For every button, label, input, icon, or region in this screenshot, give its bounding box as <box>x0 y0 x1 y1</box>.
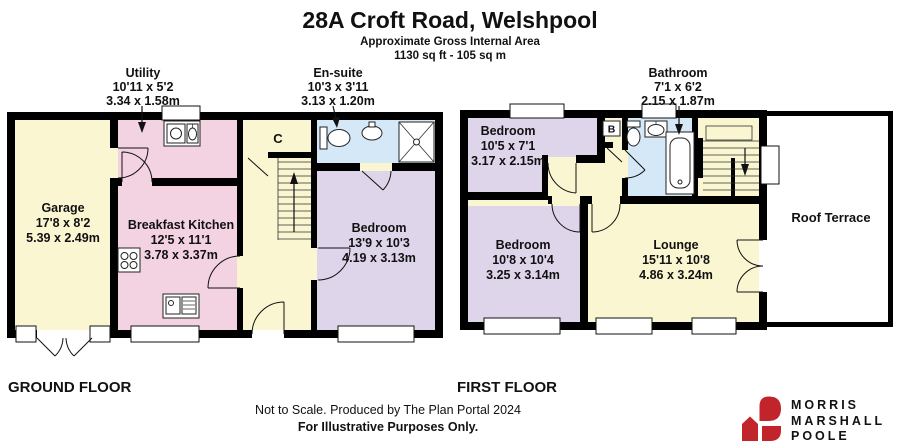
agency-logo: MORRIS MARSHALL POOLE <box>742 397 885 444</box>
ensuite-name: En-suite <box>313 66 362 80</box>
footer: Not to Scale. Produced by The Plan Porta… <box>255 403 521 434</box>
first-floor-title: FIRST FLOOR <box>457 379 557 396</box>
toilet-icon-bathroom <box>627 121 640 146</box>
logo-line2: MARSHALL <box>791 414 885 428</box>
window-bedroom-front <box>510 104 564 118</box>
lounge-imperial: 15'11 x 10'8 <box>642 253 710 267</box>
window-garage-right <box>90 326 110 342</box>
bedroom-front-imperial: 10'5 x 7'1 <box>481 139 536 153</box>
bedroom-ground-metric: 4.19 x 3.13m <box>342 251 416 265</box>
ground-floor-title: GROUND FLOOR <box>8 379 131 396</box>
stove-icon <box>118 248 140 272</box>
bedroom-rear-imperial: 10'8 x 10'4 <box>492 253 554 267</box>
door-garage-double <box>37 338 92 356</box>
footer-line2: For Illustrative Purposes Only. <box>298 420 478 434</box>
lounge-metric: 4.86 x 3.24m <box>639 268 713 282</box>
garage-metric: 5.39 x 2.49m <box>26 231 100 245</box>
bedroom-front-name: Bedroom <box>481 124 536 138</box>
bathroom-metric: 2.15 x 1.87m <box>641 94 715 108</box>
window-utility <box>162 106 200 120</box>
logo-quarter-icon <box>762 426 781 441</box>
garage-name: Garage <box>41 201 84 215</box>
utility-name: Utility <box>126 66 161 80</box>
window-bedroom-ground <box>338 326 414 342</box>
logo-droplet-icon <box>760 397 782 422</box>
basin-icon-bathroom <box>645 121 667 137</box>
utility-imperial: 10'11 x 5'2 <box>113 80 174 94</box>
window-garage-left <box>16 326 36 342</box>
footer-line1: Not to Scale. Produced by The Plan Porta… <box>255 403 521 417</box>
bedroom-front-metric: 3.17 x 2.15m <box>471 154 545 168</box>
window-bedroom-rear <box>484 318 560 334</box>
bedroom-ground-name: Bedroom <box>352 221 407 235</box>
floorplan-page: 28A Croft Road, Welshpool Approximate Gr… <box>0 0 900 445</box>
window-lounge-right <box>692 318 736 334</box>
page-subtitle: Approximate Gross Internal Area <box>360 36 540 48</box>
ensuite-metric: 3.13 x 1.20m <box>301 94 375 108</box>
kitchen-sink-icon <box>163 294 199 318</box>
logo-line3: POOLE <box>791 429 850 443</box>
bathtub-icon <box>666 132 694 194</box>
cupboard-c-label: C <box>273 131 283 146</box>
kitchen-name: Breakfast Kitchen <box>128 218 234 232</box>
bedroom-rear-name: Bedroom <box>496 238 551 252</box>
bathroom-name: Bathroom <box>648 66 707 80</box>
garage-imperial: 17'8 x 8'2 <box>36 216 91 230</box>
bedroom-ground-imperial: 13'9 x 10'3 <box>348 236 410 250</box>
lounge-name: Lounge <box>653 238 698 252</box>
kitchen-metric: 3.78 x 3.37m <box>144 248 218 262</box>
window-landing-side <box>761 146 779 184</box>
roof-terrace-label: Roof Terrace <box>791 210 870 225</box>
shower-icon <box>399 122 434 162</box>
logo-house-icon <box>742 417 758 442</box>
window-kitchen <box>131 326 199 342</box>
window-lounge-left <box>596 318 652 334</box>
bathroom-imperial: 7'1 x 6'2 <box>654 80 702 94</box>
logo-line1: MORRIS <box>791 398 859 412</box>
utility-metric: 3.34 x 1.58m <box>106 94 180 108</box>
page-area: 1130 sq ft - 105 sq m <box>394 50 506 62</box>
kitchen-imperial: 12'5 x 11'1 <box>151 233 212 247</box>
floorplan-canvas: 28A Croft Road, Welshpool Approximate Gr… <box>0 0 900 445</box>
boiler-b-label: B <box>608 124 616 136</box>
ensuite-imperial: 10'3 x 3'11 <box>308 80 369 94</box>
bedroom-rear-metric: 3.25 x 3.14m <box>486 268 560 282</box>
floor-titles: GROUND FLOOR FIRST FLOOR <box>8 379 557 396</box>
washer-sink-icon <box>164 121 200 146</box>
header: 28A Croft Road, Welshpool Approximate Gr… <box>302 7 597 62</box>
page-title: 28A Croft Road, Welshpool <box>302 7 597 33</box>
